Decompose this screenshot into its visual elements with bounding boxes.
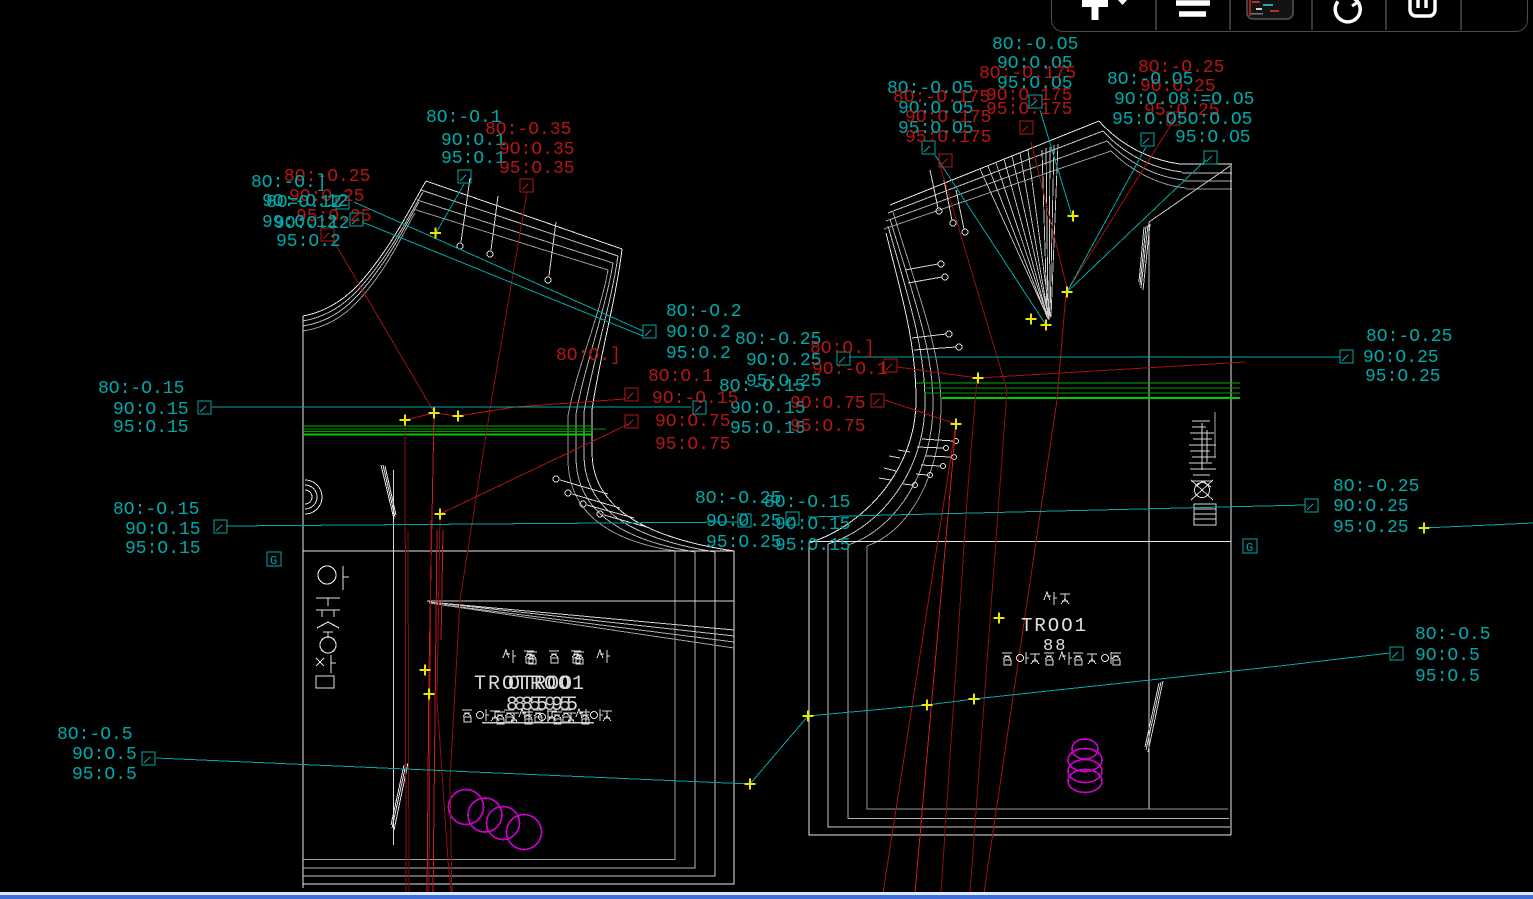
svg-text:OTROO: OTROO bbox=[508, 673, 573, 696]
svg-text:TROO1: TROO1 bbox=[1021, 615, 1088, 637]
